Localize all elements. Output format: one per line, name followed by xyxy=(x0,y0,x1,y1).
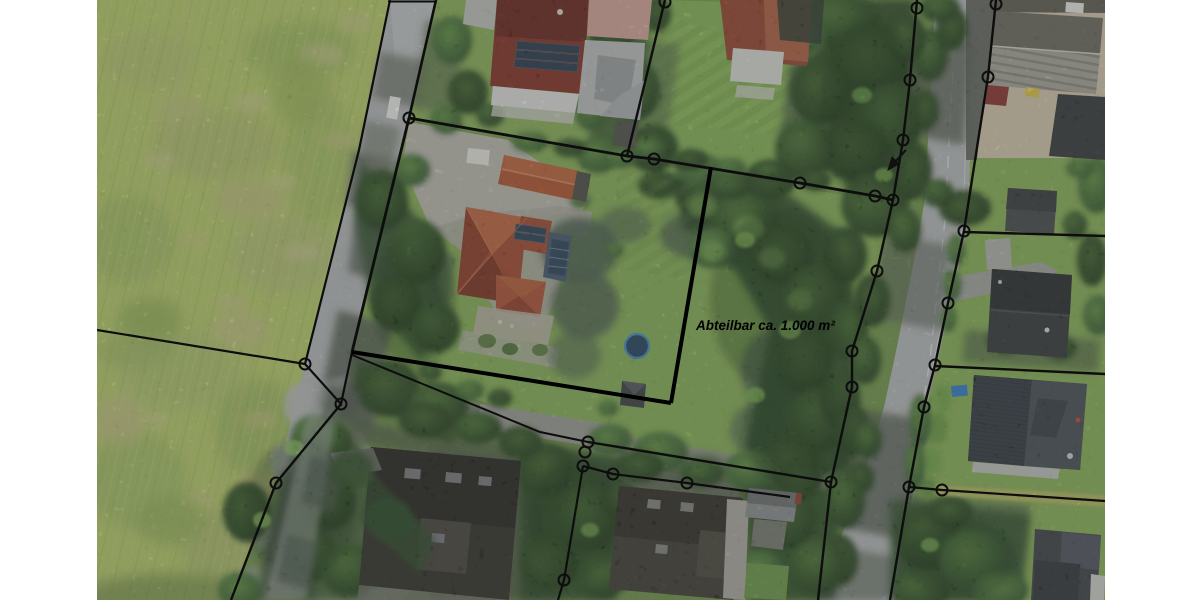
svg-text:Abteilbar ca. 1.000 m²: Abteilbar ca. 1.000 m² xyxy=(695,318,835,333)
